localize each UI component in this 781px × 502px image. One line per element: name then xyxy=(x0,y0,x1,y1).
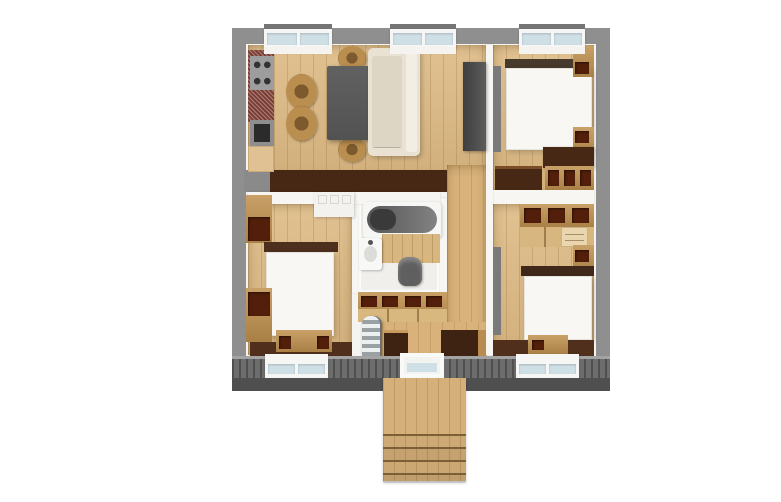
desk xyxy=(543,147,594,168)
window xyxy=(390,29,456,49)
dresser xyxy=(561,227,588,247)
wardrobe xyxy=(246,288,272,342)
partition-wall-dark xyxy=(268,170,447,192)
stove xyxy=(250,56,274,90)
bench xyxy=(528,335,568,354)
dining-chair xyxy=(286,74,317,109)
basin-bowl xyxy=(364,246,377,262)
sofa-cushions xyxy=(372,56,402,148)
window-sill xyxy=(519,47,585,54)
interior-staircase xyxy=(362,316,382,358)
kitchen-cabinet xyxy=(248,146,274,172)
bathtub xyxy=(363,202,441,238)
exterior-entrance-stairs xyxy=(383,378,466,481)
door-glass xyxy=(407,363,437,372)
washbasin xyxy=(359,238,382,270)
sofa xyxy=(368,48,420,156)
bench xyxy=(276,330,332,352)
window-sill xyxy=(264,47,332,54)
wardrobe-slim xyxy=(493,247,501,335)
shelf-unit xyxy=(520,204,594,227)
toilet xyxy=(398,257,422,286)
dresser-white xyxy=(314,192,354,217)
partition-wall xyxy=(492,190,594,204)
window xyxy=(265,354,328,378)
exterior-wall-bottom xyxy=(442,356,518,378)
wardrobe xyxy=(246,195,272,243)
partition-wall xyxy=(486,45,493,355)
kitchen-sink xyxy=(250,120,274,146)
bed-headboard xyxy=(264,242,338,252)
wardrobe xyxy=(495,166,542,190)
dining-table xyxy=(327,66,371,140)
floor-plan-canvas xyxy=(0,0,781,502)
entry-bench xyxy=(441,330,486,356)
drawer xyxy=(318,195,327,204)
desk-shelves xyxy=(545,166,594,190)
window xyxy=(264,29,332,49)
exterior-wall-bottom xyxy=(326,356,402,378)
tv-cabinet xyxy=(463,62,486,151)
bathtub-deep-end xyxy=(370,209,396,230)
drawer xyxy=(330,195,339,204)
drawer xyxy=(342,195,351,204)
bed-double xyxy=(266,252,334,336)
exterior-wall-right xyxy=(594,28,610,378)
bed-headboard xyxy=(521,266,594,276)
faucet xyxy=(368,240,373,245)
window xyxy=(519,29,585,49)
exterior-wall-bottom xyxy=(577,356,610,378)
chimney-block xyxy=(244,170,270,192)
dining-chair xyxy=(338,137,366,162)
exterior-wall-bottom xyxy=(232,356,268,378)
wardrobe-slim xyxy=(493,66,501,152)
window xyxy=(516,354,579,378)
dining-chair xyxy=(286,106,317,141)
bed-double xyxy=(524,276,592,340)
entry-door xyxy=(400,353,444,378)
window-sill xyxy=(390,47,456,54)
partition-wall xyxy=(440,198,447,293)
sofa-backrest xyxy=(406,52,417,152)
